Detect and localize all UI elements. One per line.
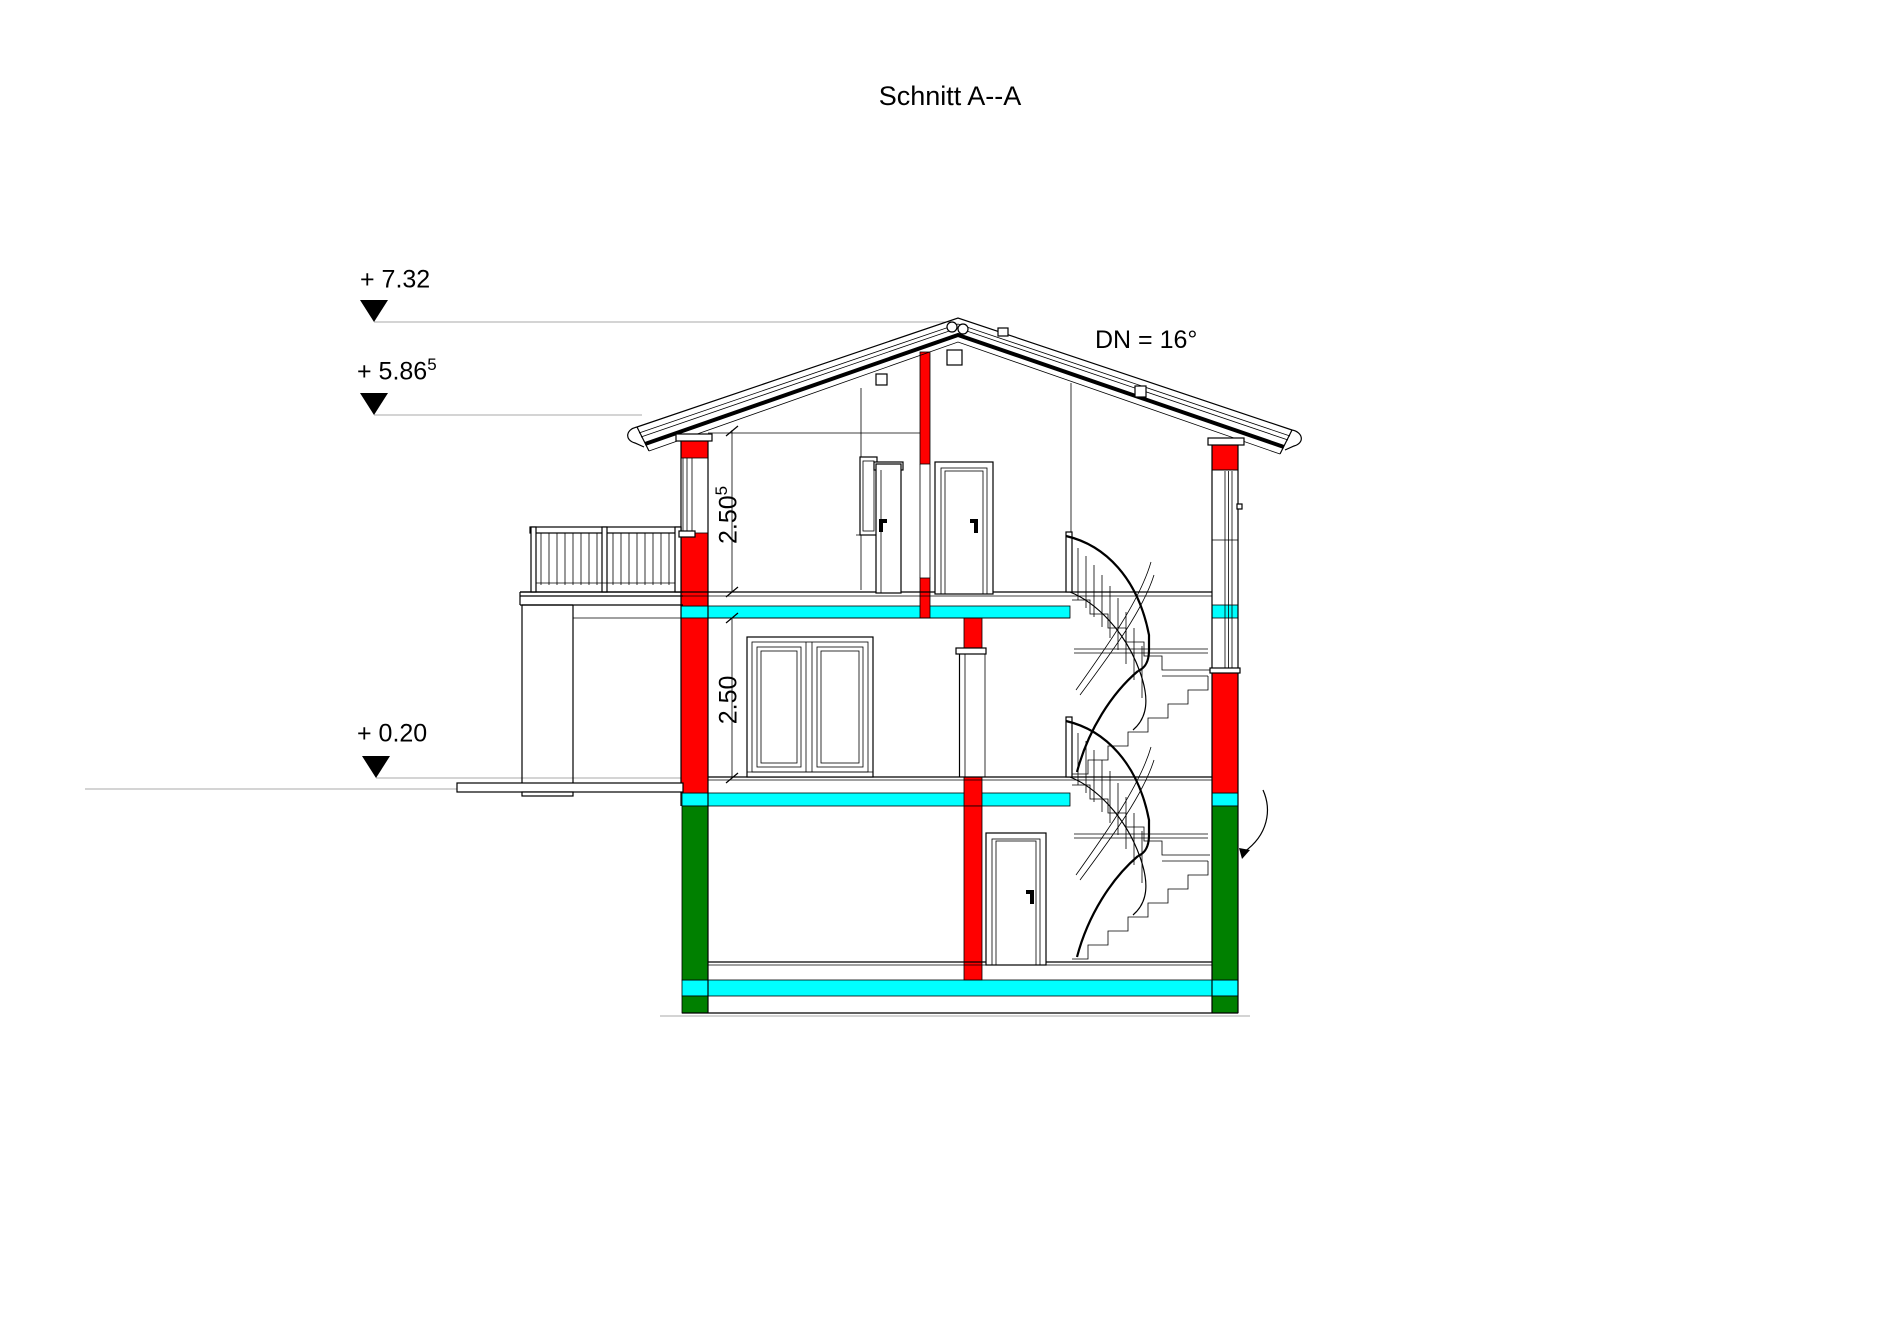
chimney-attic bbox=[920, 352, 930, 464]
section-drawing-canvas: Schnitt A--A DN = 16° + 7.32 + 5.865 + 0… bbox=[0, 0, 1900, 1344]
slab-groundfloor-right bbox=[1212, 793, 1238, 806]
interior-wall-groundfloor-bottom bbox=[964, 777, 982, 806]
wall-attic-left-lower bbox=[681, 533, 708, 606]
elevation-label-ridge: + 7.32 bbox=[360, 264, 430, 294]
basement-wall-right bbox=[1212, 806, 1238, 980]
elevation-label-eave: + 5.865 bbox=[357, 356, 437, 386]
drawing-title: Schnitt A--A bbox=[760, 82, 1140, 112]
stair-flight-lower bbox=[1066, 717, 1210, 959]
elevation-triangle-ground bbox=[362, 756, 390, 778]
basement-exterior-door-swing bbox=[1239, 790, 1267, 859]
dimension-label-groundfloor-height: 2.50 bbox=[713, 640, 743, 760]
wall-groundfloor-right bbox=[1212, 670, 1238, 793]
slab-groundfloor bbox=[682, 793, 1070, 806]
right-wall-window bbox=[1210, 470, 1242, 673]
purlin-left bbox=[876, 374, 887, 385]
basement-wall-left bbox=[682, 806, 708, 980]
basement-door bbox=[986, 833, 1046, 965]
interior-wall-groundfloor-top bbox=[964, 618, 982, 648]
basement-wall-left-footing bbox=[682, 996, 708, 1013]
slab-basement bbox=[682, 980, 1238, 996]
balcony-railing bbox=[530, 527, 681, 592]
elevation-triangle-eave bbox=[360, 393, 388, 415]
terrace-plate bbox=[457, 783, 683, 792]
slab-attic-floor bbox=[681, 606, 1070, 618]
attic-door-left bbox=[874, 462, 903, 593]
groundfloor-door-edge bbox=[956, 648, 986, 777]
dimension-label-attic-height: 2.505 bbox=[713, 455, 743, 575]
balcony-slab bbox=[520, 592, 683, 605]
elevation-triangle-ridge bbox=[360, 300, 388, 322]
elevation-label-ground: + 0.20 bbox=[357, 718, 427, 748]
stair-flight-upper bbox=[1066, 532, 1210, 774]
wall-groundfloor-left bbox=[681, 618, 708, 793]
wall-attic-right-top bbox=[1212, 442, 1238, 470]
attic-door-right bbox=[935, 462, 993, 594]
chimney-at-floor bbox=[920, 578, 930, 618]
terrace-plate-foot bbox=[522, 792, 573, 796]
interior-wall-basement bbox=[964, 806, 982, 980]
datum-lines bbox=[85, 322, 1250, 1016]
groundfloor-openings bbox=[747, 637, 986, 777]
purlin-right bbox=[1135, 386, 1146, 397]
balcony-support-wall bbox=[522, 605, 573, 783]
balcony bbox=[457, 527, 683, 796]
roof-pitch-label: DN = 16° bbox=[1095, 327, 1197, 355]
section-drawing bbox=[0, 0, 1900, 1344]
groundfloor-double-window bbox=[747, 637, 873, 777]
basement-wall-right-footing bbox=[1212, 996, 1238, 1013]
